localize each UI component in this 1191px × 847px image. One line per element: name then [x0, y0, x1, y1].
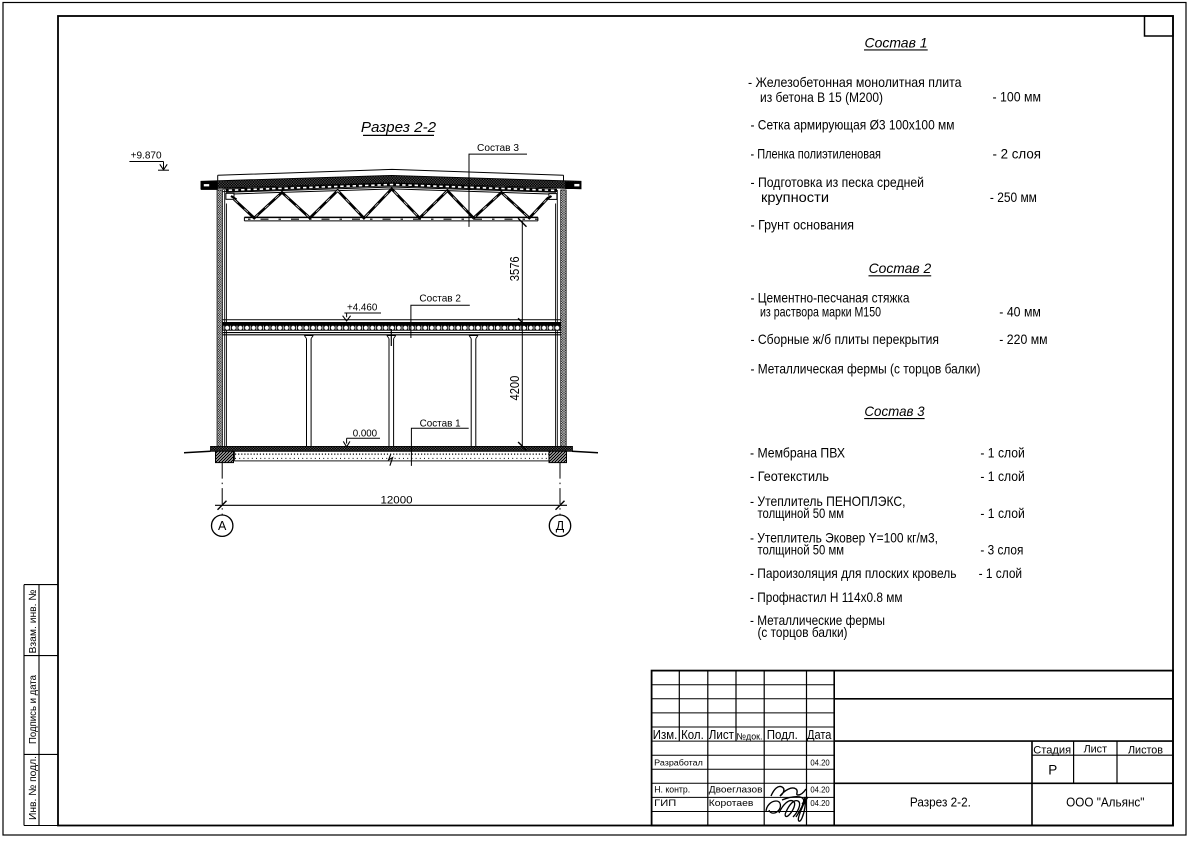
svg-text:- 40 мм: - 40 мм	[999, 304, 1041, 320]
svg-text:Подпись и дата: Подпись и дата	[27, 675, 39, 744]
svg-text:Состав 2: Состав 2	[869, 260, 932, 276]
svg-text:3576: 3576	[507, 256, 522, 281]
svg-text:0.000: 0.000	[353, 428, 378, 439]
svg-text:Изм.: Изм.	[653, 727, 678, 742]
svg-text:Лист: Лист	[1084, 744, 1108, 756]
svg-text:12000: 12000	[381, 494, 413, 506]
svg-text:- 1 слой: - 1 слой	[980, 468, 1024, 484]
svg-text:Инв. № подл.: Инв. № подл.	[27, 756, 39, 820]
svg-text:ГИП: ГИП	[654, 798, 676, 808]
svg-text:- 2 слоя: - 2 слоя	[993, 146, 1042, 162]
svg-text:- Мембрана ПВХ: - Мембрана ПВХ	[750, 445, 846, 461]
svg-text:- Пароизоляция для плоских кро: - Пароизоляция для плоских кровель	[750, 565, 957, 581]
svg-text:+9.870: +9.870	[131, 151, 162, 162]
svg-text:04.20: 04.20	[810, 757, 830, 767]
svg-text:№док.: №док.	[737, 732, 763, 742]
svg-text:Коротаев: Коротаев	[709, 798, 754, 808]
svg-text:Разрез 2-2.: Разрез 2-2.	[910, 795, 971, 809]
svg-text:Состав 1: Состав 1	[420, 418, 461, 429]
svg-text:Лист: Лист	[709, 727, 734, 742]
svg-text:Кол.: Кол.	[681, 727, 704, 742]
svg-text:Двоеглазов: Двоеглазов	[709, 784, 763, 794]
svg-text:+4.460: +4.460	[347, 302, 378, 313]
svg-text:Н. контр.: Н. контр.	[654, 784, 690, 794]
svg-text:из раствора марки М150: из раствора марки М150	[760, 304, 881, 320]
svg-text:- Подготовка из песка средней: - Подготовка из песка средней	[751, 174, 925, 190]
svg-text:- Железобетонная монолитная п: - Железобетонная монолитная плита	[748, 74, 962, 90]
svg-text:Состав 3: Состав 3	[477, 143, 519, 154]
svg-text:Состав 2: Состав 2	[419, 294, 461, 305]
svg-text:толщиной 50 мм: толщиной 50 мм	[758, 505, 845, 521]
svg-text:(с торцов балки): (с торцов балки)	[758, 624, 848, 640]
svg-text:- Грунт основания: - Грунт основания	[751, 217, 855, 233]
svg-text:Д: Д	[556, 519, 565, 533]
svg-text:- 100 мм: - 100 мм	[993, 89, 1042, 105]
svg-text:Состав 3: Состав 3	[864, 403, 924, 419]
svg-text:04.20: 04.20	[810, 784, 830, 794]
svg-text:- Профнастил Н 114х0.8 мм: - Профнастил Н 114х0.8 мм	[750, 589, 903, 605]
svg-text:- Сетка армирующая Ø3 100x100: - Сетка армирующая Ø3 100x100 мм	[751, 117, 955, 133]
svg-text:А: А	[218, 519, 227, 533]
svg-text:04.20: 04.20	[810, 798, 830, 808]
svg-text:- Металлическая фермы (с торцо: - Металлическая фермы (с торцов балки)	[751, 361, 981, 377]
svg-text:Разрез 2-2: Разрез 2-2	[361, 119, 437, 136]
svg-text:- 1 слой: - 1 слой	[979, 565, 1023, 581]
svg-text:Стадия: Стадия	[1033, 744, 1071, 756]
svg-text:- 220 мм: - 220 мм	[999, 331, 1047, 347]
svg-text:4200: 4200	[507, 376, 522, 401]
svg-text:- 1 слой: - 1 слой	[980, 505, 1024, 521]
svg-text:Листов: Листов	[1128, 745, 1163, 757]
svg-text:Дата: Дата	[807, 727, 832, 742]
svg-text:Подл.: Подл.	[767, 727, 798, 742]
svg-text:толщиной 50 мм: толщиной 50 мм	[758, 542, 845, 558]
svg-text:- 1 слой: - 1 слой	[980, 445, 1024, 461]
svg-text:крупности: крупности	[761, 189, 829, 205]
svg-text:Взам. инв. №: Взам. инв. №	[27, 590, 39, 654]
svg-text:- 250 мм: - 250 мм	[990, 189, 1037, 205]
svg-text:ООО "Альянс": ООО "Альянс"	[1066, 795, 1144, 809]
svg-text:- 3 слоя: - 3 слоя	[980, 542, 1023, 558]
svg-text:из бетона В 15 (М200): из бетона В 15 (М200)	[760, 89, 883, 105]
svg-text:Р: Р	[1048, 763, 1057, 778]
svg-text:- Пленка полиэтиленовая: - Пленка полиэтиленовая	[751, 146, 882, 162]
svg-text:- Сборные ж/б плиты перекрытия: - Сборные ж/б плиты перекрытия	[751, 331, 940, 347]
svg-text:- Геотекстиль: - Геотекстиль	[750, 468, 829, 484]
svg-text:Состав 1: Состав 1	[865, 35, 928, 51]
svg-text:Разработал: Разработал	[654, 757, 703, 767]
